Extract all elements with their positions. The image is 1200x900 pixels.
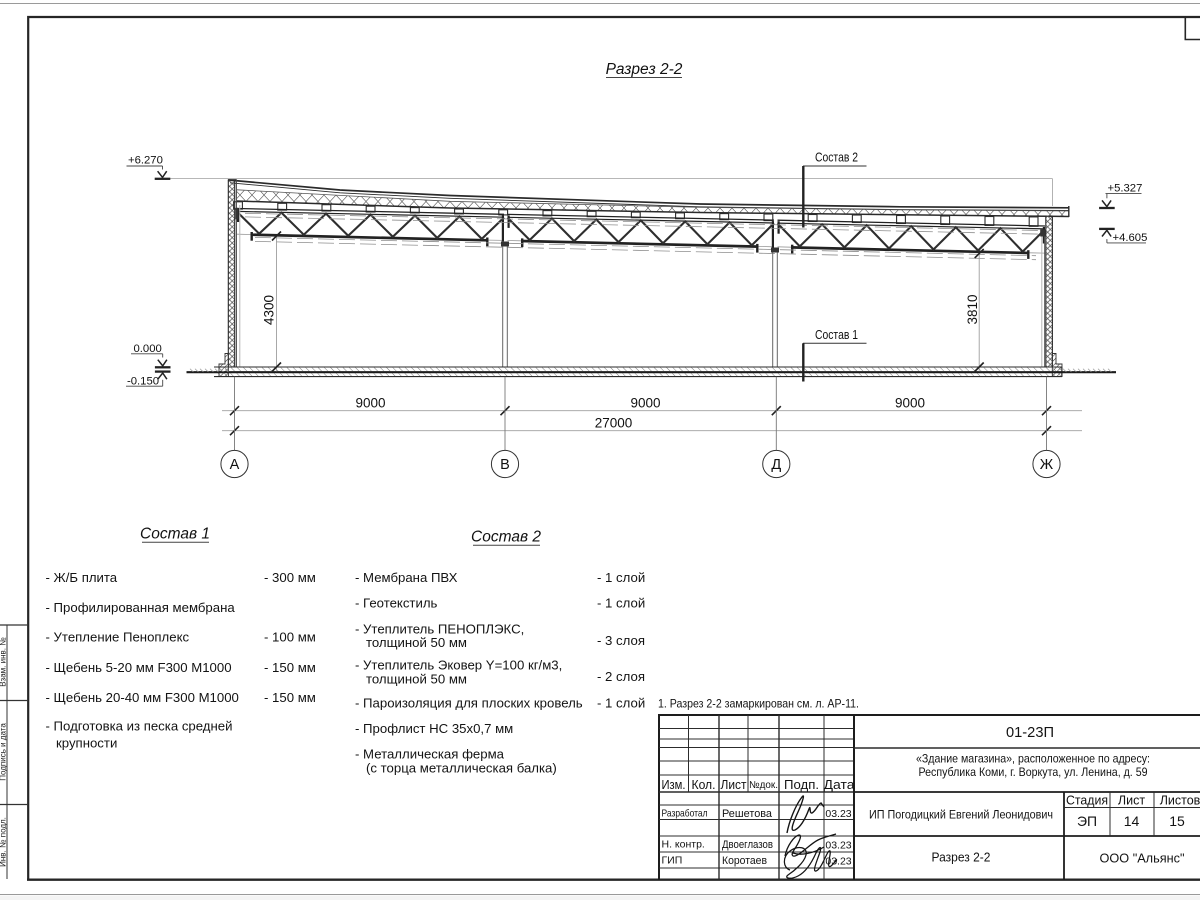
svg-text:- Утепление Пеноплекс: - Утепление Пеноплекс [46, 630, 190, 645]
svg-text:4300: 4300 [262, 295, 277, 325]
svg-text:- Профилированная мембрана: - Профилированная мембрана [46, 600, 236, 615]
svg-text:- 300 мм: - 300 мм [264, 570, 316, 585]
svg-text:01-23П: 01-23П [1006, 724, 1054, 741]
svg-text:ГИП: ГИП [662, 855, 683, 867]
svg-text:03.23: 03.23 [825, 808, 851, 820]
svg-text:ООО "Альянс": ООО "Альянс" [1100, 851, 1185, 866]
svg-text:- Металлическая ферма: - Металлическая ферма [355, 747, 505, 762]
svg-text:ИП Погодицкий Евгений Леонидов: ИП Погодицкий Евгений Леонидович [869, 808, 1053, 822]
svg-text:Коротаев: Коротаев [722, 855, 767, 867]
svg-text:-0.150: -0.150 [127, 375, 159, 387]
svg-text:+6.270: +6.270 [128, 155, 163, 167]
svg-text:- 100 мм: - 100 мм [264, 630, 316, 645]
svg-text:№док.: №док. [749, 780, 778, 791]
svg-text:+5.327: +5.327 [1108, 183, 1143, 195]
svg-text:- 1 слой: - 1 слой [597, 696, 645, 711]
svg-text:- Профлист НС 35х0,7 мм: - Профлист НС 35х0,7 мм [355, 721, 513, 736]
svg-text:14: 14 [1124, 813, 1140, 829]
svg-text:- Щебень 20-40 мм F300 М1000: - Щебень 20-40 мм F300 М1000 [46, 690, 239, 705]
svg-text:- Утеплитель Эковер Y=100 кг/м: - Утеплитель Эковер Y=100 кг/м3, [355, 658, 562, 673]
svg-text:Состав 2: Состав 2 [471, 529, 541, 546]
svg-text:- 1 слой: - 1 слой [597, 596, 645, 611]
svg-text:9000: 9000 [630, 396, 660, 411]
svg-text:- Ж/Б плита: - Ж/Б плита [46, 570, 118, 585]
svg-text:1. Разрез 2-2 замаркирован см.: 1. Разрез 2-2 замаркирован см. л. АР-11. [658, 697, 859, 711]
svg-text:- Мембрана ПВХ: - Мембрана ПВХ [355, 570, 458, 585]
svg-text:В: В [500, 457, 510, 473]
svg-text:9000: 9000 [355, 396, 385, 411]
svg-text:ЭП: ЭП [1077, 813, 1097, 829]
svg-text:15: 15 [1169, 813, 1185, 829]
svg-text:Состав 1: Состав 1 [815, 328, 858, 342]
svg-text:0.000: 0.000 [134, 343, 162, 355]
svg-text:толщиной 50 мм: толщиной 50 мм [366, 635, 467, 650]
svg-text:- Пароизоляция для плоских кро: - Пароизоляция для плоских кровель [355, 696, 583, 711]
svg-text:Республика Коми, г. Воркута, у: Республика Коми, г. Воркута, ул. Ленина,… [919, 765, 1148, 779]
svg-text:крупности: крупности [56, 736, 117, 751]
svg-text:- 2 слоя: - 2 слоя [597, 669, 645, 684]
svg-text:А: А [230, 457, 240, 473]
svg-text:Изм.: Изм. [662, 777, 686, 792]
svg-text:Дата: Дата [824, 777, 856, 792]
svg-text:Лист: Лист [1118, 794, 1145, 808]
svg-text:Состав 1: Состав 1 [140, 526, 210, 543]
svg-text:9000: 9000 [895, 396, 925, 411]
svg-text:- 150 мм: - 150 мм [264, 690, 316, 705]
svg-text:(с торца металлическая балка): (с торца металлическая балка) [366, 761, 557, 776]
svg-text:Взам. инв. №: Взам. инв. № [0, 637, 8, 687]
svg-text:Подпись и дата: Подпись и дата [0, 723, 8, 781]
svg-text:27000: 27000 [595, 416, 633, 431]
svg-text:толщиной 50 мм: толщиной 50 мм [366, 672, 467, 687]
svg-text:Разрез 2-2: Разрез 2-2 [932, 851, 991, 865]
svg-text:Состав 2: Состав 2 [815, 151, 858, 165]
svg-text:03.23: 03.23 [825, 840, 851, 852]
svg-text:Листов: Листов [1160, 794, 1200, 808]
svg-text:Подп.: Подп. [784, 777, 819, 792]
svg-text:Ж: Ж [1040, 457, 1054, 473]
svg-text:- 150 мм: - 150 мм [264, 660, 316, 675]
svg-text:Н. контр.: Н. контр. [662, 839, 705, 851]
svg-text:- Геотекстиль: - Геотекстиль [355, 596, 438, 611]
svg-text:+4.605: +4.605 [1113, 232, 1148, 244]
svg-text:Д: Д [771, 457, 781, 473]
svg-text:Двоеглазов: Двоеглазов [722, 839, 773, 851]
svg-text:Разрез 2-2: Разрез 2-2 [606, 61, 683, 78]
svg-text:Кол.: Кол. [692, 777, 716, 792]
svg-text:Разработал: Разработал [662, 808, 708, 820]
svg-text:Инв. № подл.: Инв. № подл. [0, 817, 8, 867]
svg-text:3810: 3810 [965, 294, 980, 324]
svg-text:- Щебень 5-20 мм F300 М1000: - Щебень 5-20 мм F300 М1000 [46, 660, 232, 675]
svg-text:Лист: Лист [721, 777, 747, 792]
svg-text:- Подготовка из песка средней: - Подготовка из песка средней [46, 719, 233, 734]
svg-text:«Здание магазина», расположенн: «Здание магазина», расположенное по адре… [916, 752, 1150, 766]
svg-text:Решетова: Решетова [722, 808, 773, 820]
svg-text:Стадия: Стадия [1066, 794, 1108, 808]
svg-text:- 1 слой: - 1 слой [597, 570, 645, 585]
svg-text:- 3 слоя: - 3 слоя [597, 633, 645, 648]
